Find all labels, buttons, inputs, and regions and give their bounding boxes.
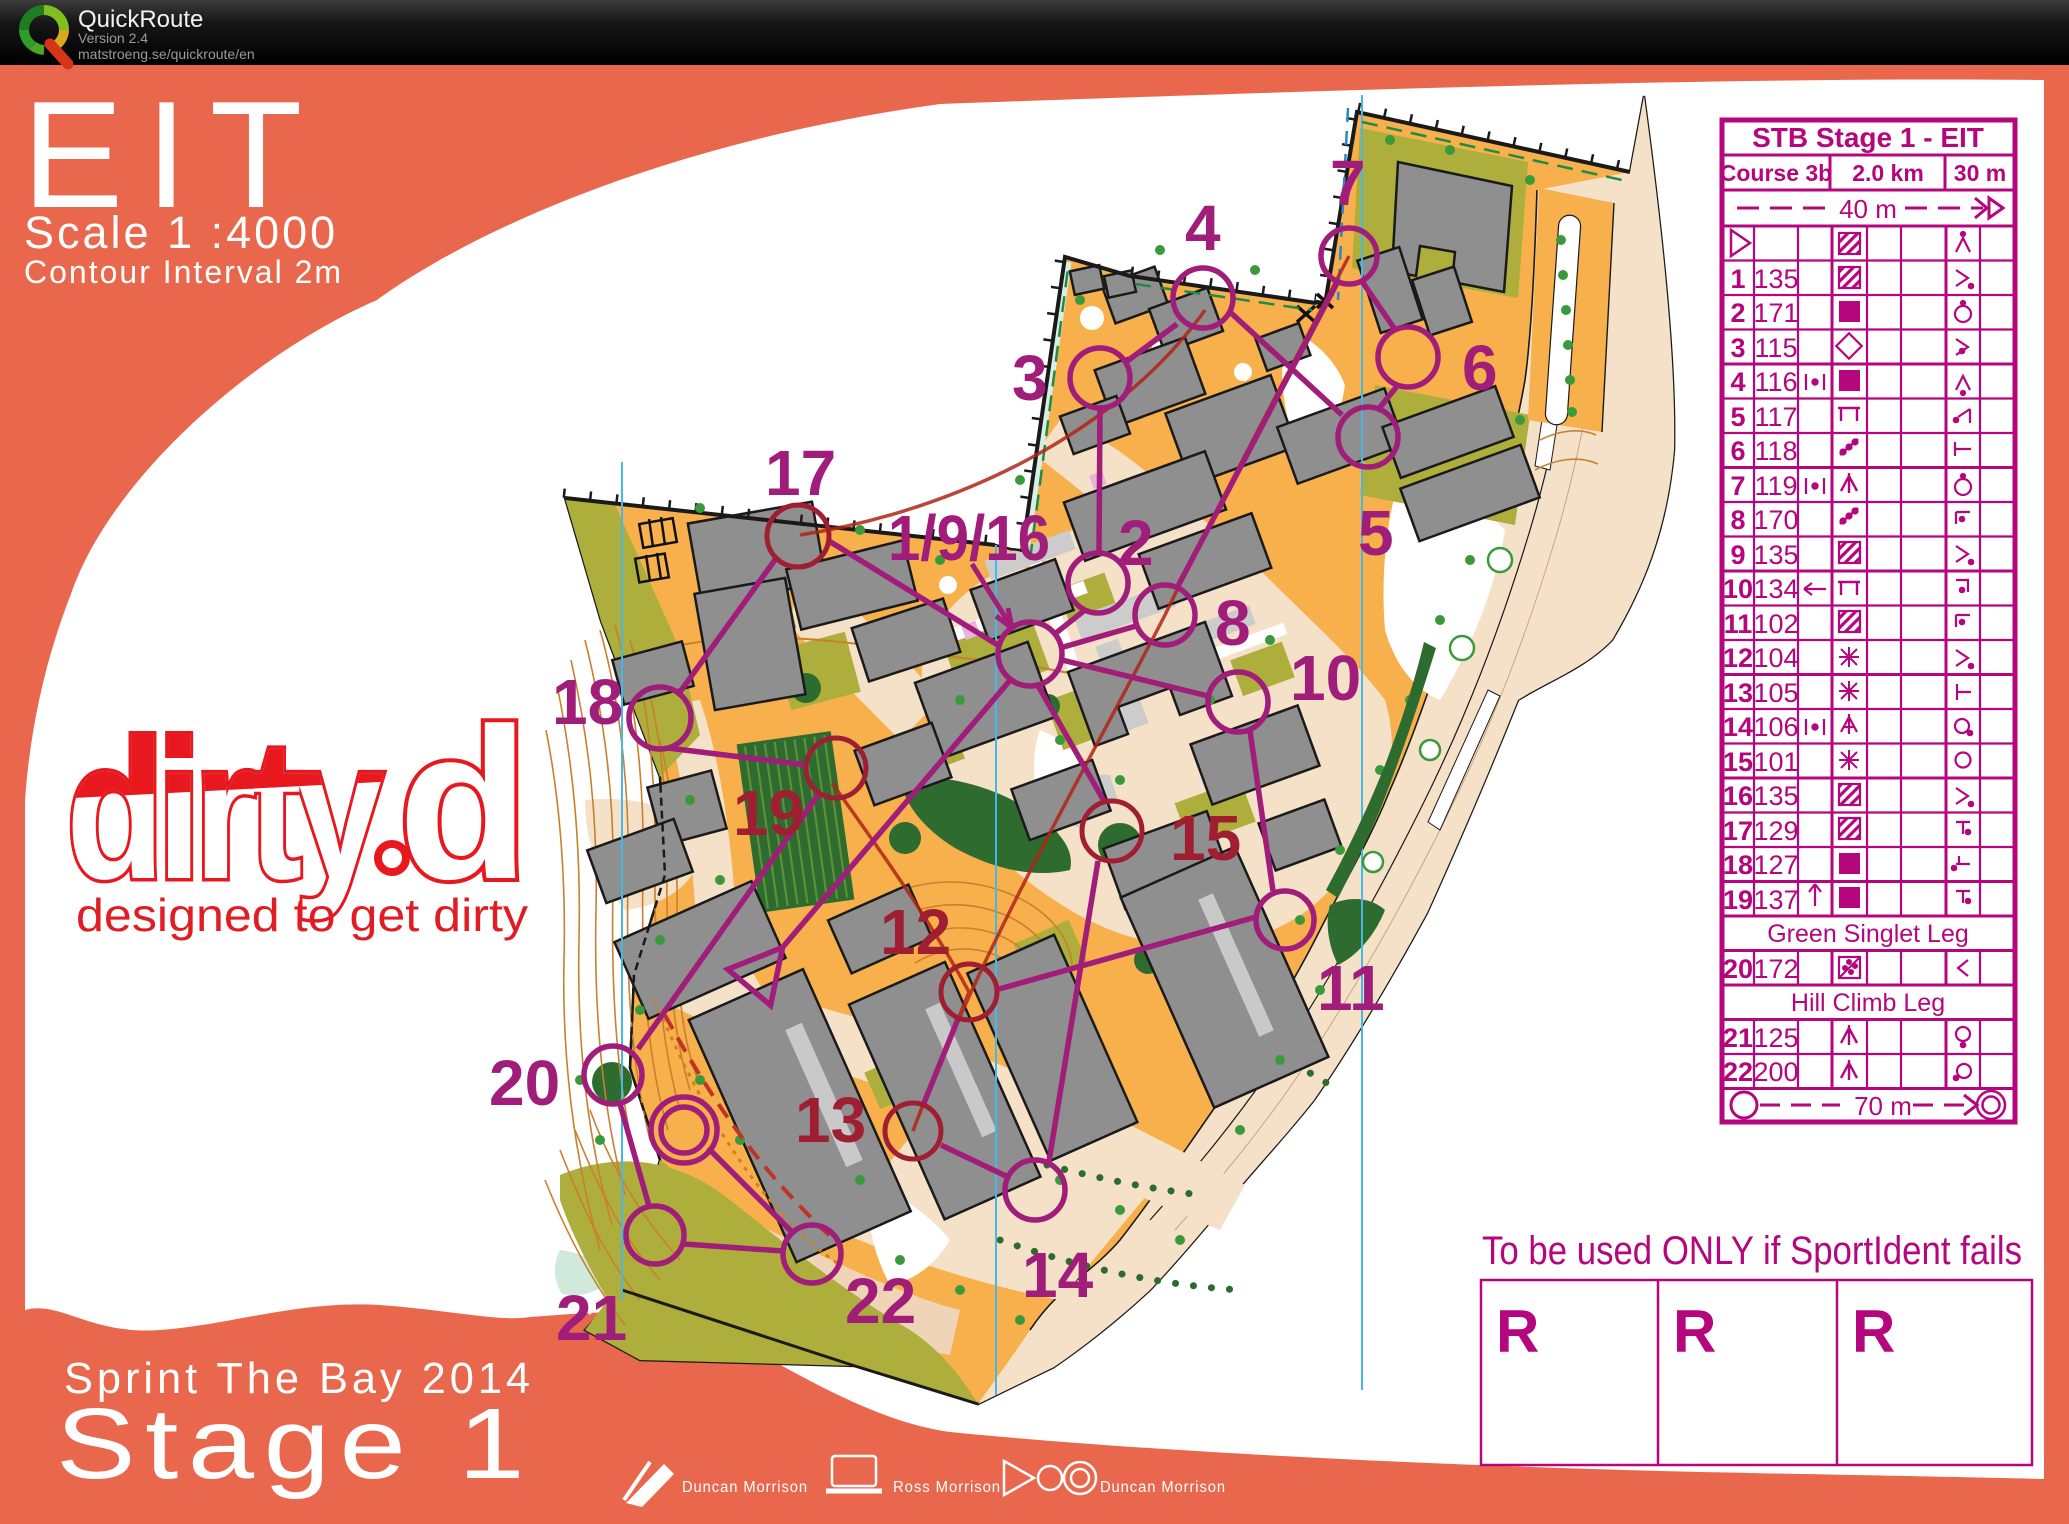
- svg-text:171: 171: [1753, 298, 1798, 328]
- svg-text:3: 3: [1730, 333, 1745, 363]
- svg-text:8: 8: [1730, 505, 1745, 535]
- svg-text:Stage 1: Stage 1: [56, 1388, 534, 1500]
- svg-text:119: 119: [1754, 471, 1797, 501]
- svg-text:6: 6: [1730, 436, 1745, 466]
- svg-text:106: 106: [1753, 712, 1798, 742]
- svg-text:127: 127: [1753, 850, 1798, 880]
- svg-text:200: 200: [1753, 1057, 1798, 1087]
- svg-text:QuickRoute: QuickRoute: [78, 6, 203, 33]
- svg-text:4: 4: [1730, 367, 1745, 397]
- svg-text:1/9/16: 1/9/16: [888, 502, 1050, 574]
- svg-text:19: 19: [733, 777, 804, 849]
- svg-text:17: 17: [765, 437, 836, 509]
- svg-text:5: 5: [1730, 402, 1745, 432]
- svg-text:Version 2.4: Version 2.4: [78, 30, 148, 46]
- svg-text:70 m: 70 m: [1854, 1091, 1912, 1121]
- svg-text:102: 102: [1753, 609, 1798, 639]
- svg-text:12: 12: [880, 896, 951, 968]
- svg-text:40 m: 40 m: [1839, 194, 1897, 224]
- svg-text:Duncan Morrison: Duncan Morrison: [1100, 1479, 1226, 1496]
- svg-text:16: 16: [1723, 781, 1753, 811]
- svg-text:Ross Morrison: Ross Morrison: [893, 1479, 1001, 1496]
- svg-text:30 m: 30 m: [1954, 160, 2006, 186]
- svg-text:101: 101: [1753, 747, 1798, 777]
- svg-text:Scale 1 :4000: Scale 1 :4000: [24, 207, 338, 258]
- svg-text:2: 2: [1730, 298, 1745, 328]
- svg-text:Course 3b: Course 3b: [1720, 160, 1832, 186]
- svg-text:20: 20: [1723, 954, 1753, 984]
- svg-text:21: 21: [556, 1282, 627, 1354]
- svg-text:1: 1: [1730, 264, 1745, 294]
- svg-text:R: R: [1496, 1298, 1539, 1365]
- svg-text:R: R: [1852, 1298, 1895, 1365]
- svg-text:134: 134: [1753, 574, 1798, 604]
- svg-text:Duncan Morrison: Duncan Morrison: [682, 1479, 808, 1496]
- svg-text:15: 15: [1170, 802, 1241, 874]
- svg-text:13: 13: [795, 1084, 866, 1156]
- svg-text:R: R: [1673, 1298, 1716, 1365]
- svg-text:115: 115: [1754, 333, 1797, 363]
- svg-text:17: 17: [1723, 816, 1753, 846]
- svg-text:11: 11: [1724, 609, 1753, 639]
- svg-text:22: 22: [845, 1265, 916, 1337]
- svg-text:118: 118: [1754, 436, 1797, 466]
- svg-text:14: 14: [1022, 1239, 1094, 1311]
- svg-text:125: 125: [1753, 1023, 1798, 1053]
- svg-text:designed to get dirty: designed to get dirty: [76, 889, 528, 941]
- svg-text:Hill Climb Leg: Hill Climb Leg: [1791, 989, 1945, 1017]
- svg-text:11: 11: [1317, 952, 1385, 1024]
- svg-text:7: 7: [1330, 147, 1366, 219]
- svg-text:14: 14: [1723, 712, 1753, 742]
- svg-text:18: 18: [1723, 850, 1753, 880]
- svg-text:13: 13: [1723, 678, 1753, 708]
- svg-text:21: 21: [1723, 1023, 1753, 1053]
- svg-text:6: 6: [1462, 332, 1498, 404]
- svg-text:117: 117: [1754, 402, 1797, 432]
- svg-text:22: 22: [1723, 1057, 1753, 1087]
- svg-text:7: 7: [1730, 471, 1745, 501]
- svg-text:2.0 km: 2.0 km: [1852, 160, 1924, 186]
- svg-text:10: 10: [1723, 574, 1753, 604]
- svg-text:Contour Interval 2m: Contour Interval 2m: [24, 254, 343, 290]
- svg-text:170: 170: [1753, 505, 1798, 535]
- svg-text:172: 172: [1753, 954, 1798, 984]
- svg-text:137: 137: [1753, 885, 1798, 915]
- svg-text:116: 116: [1754, 367, 1797, 397]
- svg-text:Green Singlet Leg: Green Singlet Leg: [1767, 920, 1969, 948]
- svg-text:104: 104: [1753, 643, 1798, 673]
- svg-text:135: 135: [1753, 264, 1798, 294]
- svg-text:129: 129: [1753, 816, 1798, 846]
- svg-text:matstroeng.se/quickroute/en: matstroeng.se/quickroute/en: [78, 46, 255, 62]
- svg-text:20: 20: [489, 1047, 560, 1119]
- svg-text:STB Stage 1 - EIT: STB Stage 1 - EIT: [1752, 122, 1984, 153]
- svg-text:To be used ONLY if SportIdent: To be used ONLY if SportIdent fails: [1482, 1229, 2022, 1273]
- svg-text:2: 2: [1118, 507, 1154, 579]
- svg-text:135: 135: [1753, 540, 1798, 570]
- svg-text:5: 5: [1358, 497, 1394, 569]
- svg-text:12: 12: [1723, 643, 1753, 673]
- svg-text:9: 9: [1730, 540, 1745, 570]
- svg-text:3: 3: [1012, 342, 1048, 414]
- svg-text:135: 135: [1753, 781, 1798, 811]
- svg-text:10: 10: [1290, 642, 1361, 714]
- svg-text:19: 19: [1723, 885, 1753, 915]
- svg-text:18: 18: [552, 666, 623, 738]
- svg-text:15: 15: [1723, 747, 1753, 777]
- svg-text:8: 8: [1215, 587, 1251, 659]
- svg-text:d: d: [398, 683, 529, 924]
- svg-text:105: 105: [1753, 678, 1798, 708]
- svg-text:4: 4: [1185, 192, 1221, 264]
